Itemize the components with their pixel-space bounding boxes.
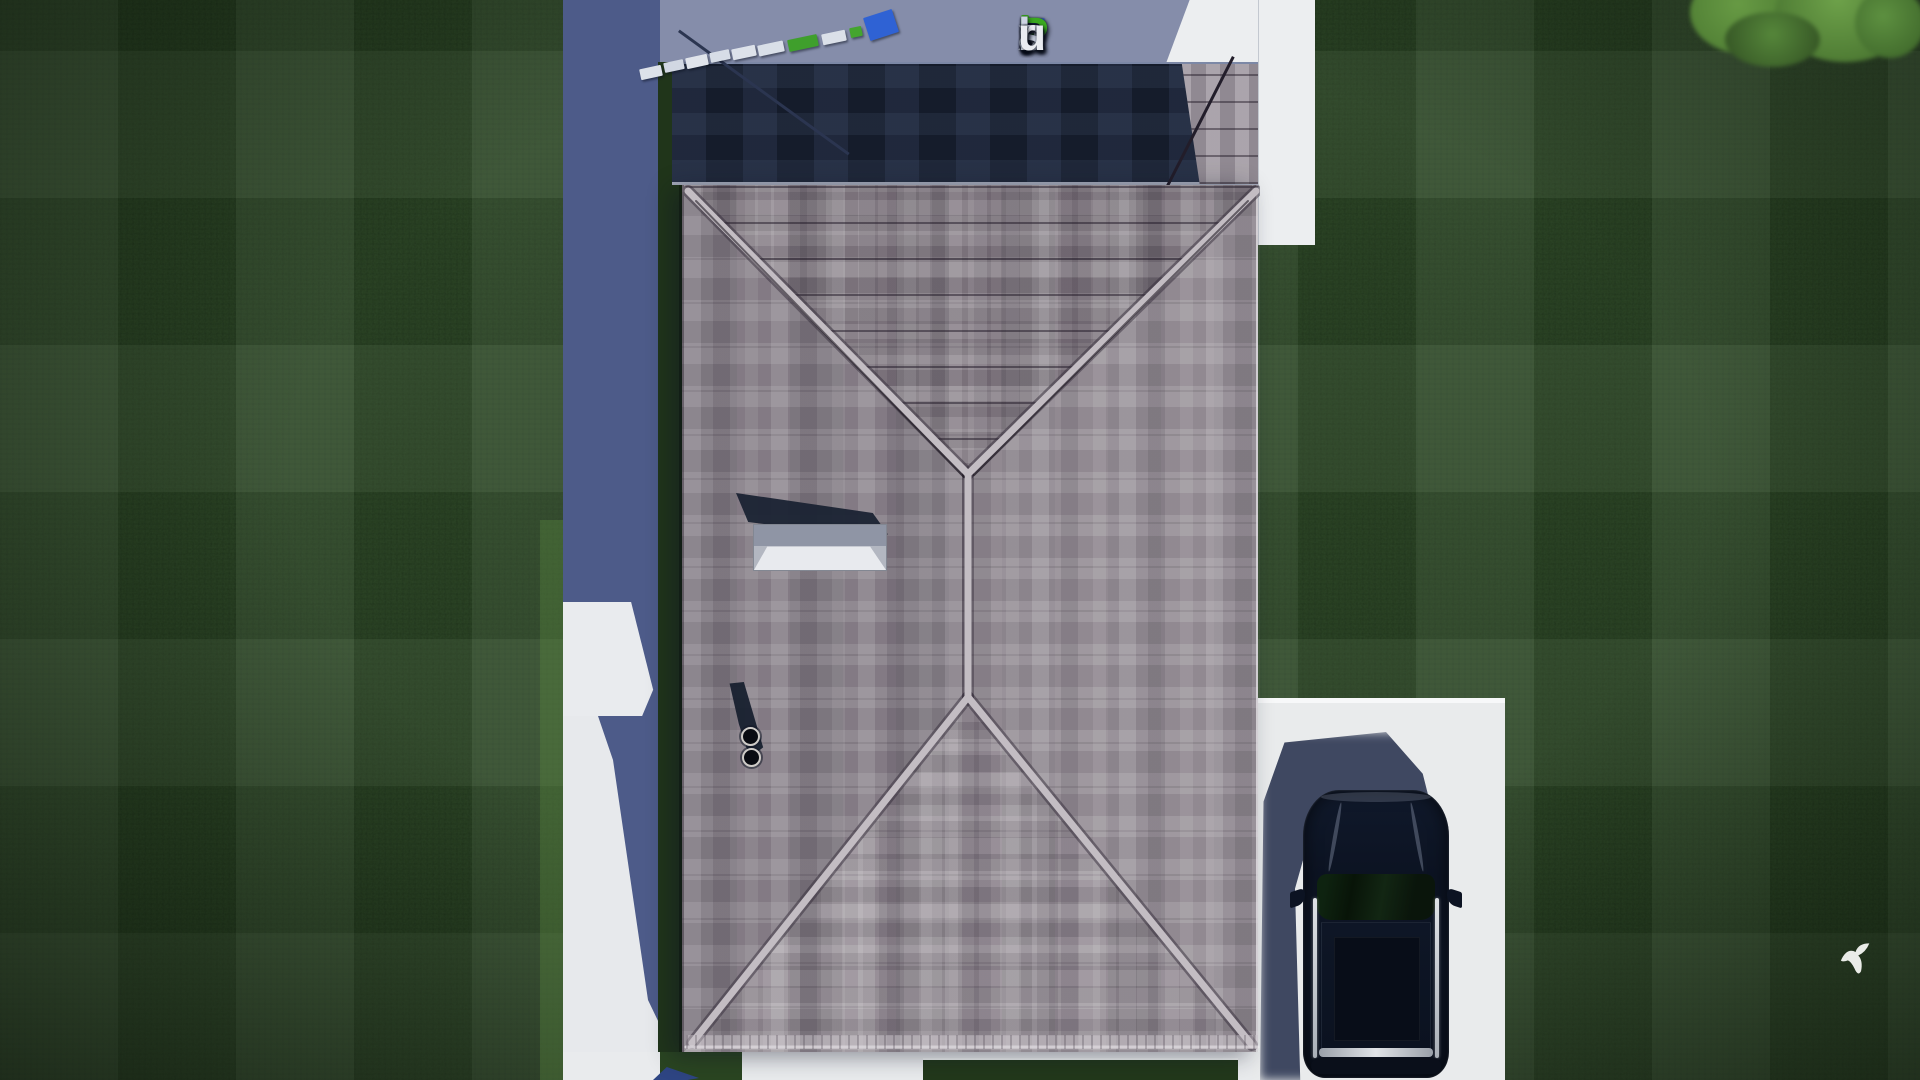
watermark-letter: u [1018, 6, 1045, 62]
flying-bird [1833, 939, 1879, 981]
roof-dark-section [672, 62, 1258, 185]
aerial-house-render: FıxPlans.ru [0, 0, 1920, 1080]
car-sunroof [1334, 937, 1420, 1041]
roof-rail [1313, 898, 1317, 1058]
tree-canopy [1680, 0, 1920, 90]
walkway-left [563, 0, 660, 1080]
chimney-cap-side [754, 525, 886, 546]
vent-pipe [741, 727, 760, 746]
hood-highlight [1409, 802, 1425, 872]
rear-bumper [1311, 1058, 1441, 1074]
concrete-pad-right [1258, 0, 1315, 245]
chimney-cap [753, 524, 887, 571]
tree-blob [1725, 12, 1820, 67]
hip-roof [682, 185, 1258, 1052]
sunlit-grass-edge [540, 520, 563, 1080]
house-shadow-on-walkway [563, 0, 660, 1080]
car-roof [1321, 922, 1431, 1054]
roof-rail [1435, 898, 1439, 1058]
hood-highlight [1327, 802, 1343, 872]
side-mirror [1290, 888, 1305, 909]
bottom-lawn-strip [923, 1058, 1238, 1080]
grass-strip-left-of-house [658, 62, 682, 1052]
vent-pipe [742, 748, 761, 767]
car [1303, 790, 1449, 1078]
car-windshield [1317, 874, 1435, 920]
roof-ridge-and-hip-lines [684, 185, 1260, 1052]
car-front-edge [1321, 792, 1431, 802]
eave-band [686, 1035, 1258, 1049]
rear-glass-trim [1319, 1048, 1433, 1057]
